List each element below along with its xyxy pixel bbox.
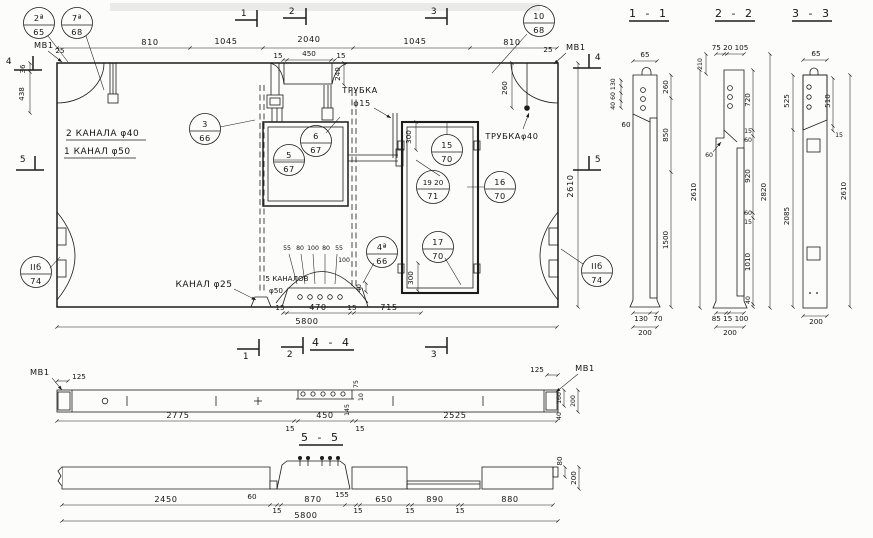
section-4-4: 4 - 4 МВ1 125 2775 15 450 15 2525 75 10 … xyxy=(30,336,595,433)
callout-3-66: 366 xyxy=(190,114,221,145)
svg-text:70: 70 xyxy=(494,191,506,201)
block-880 xyxy=(482,467,553,489)
dim-36: 36 xyxy=(18,64,27,74)
lifting-loop-1-1 xyxy=(642,68,651,76)
dim-60-55: 60 xyxy=(247,492,257,501)
svg-text:19 20: 19 20 xyxy=(423,178,444,187)
svg-text:2: 2 xyxy=(289,7,295,17)
mv1-44-left: МВ1 xyxy=(30,367,50,377)
dim-450: 450 xyxy=(316,410,333,420)
dim-ch-80b: 80 xyxy=(322,245,330,252)
dim-40-22: 40 xyxy=(745,296,752,304)
dim-145: 145 xyxy=(344,404,351,416)
dim-60-22-left: 60 xyxy=(705,152,713,159)
callout-16-70: 1670 xyxy=(485,172,516,203)
dim-15-22b: 15 xyxy=(744,219,752,226)
section-5-5-title: 5 - 5 xyxy=(301,431,341,444)
section-2-2-title: 2 - 2 xyxy=(715,7,755,20)
dim-2085: 2085 xyxy=(782,207,791,225)
dim-1500: 1500 xyxy=(661,230,670,249)
dim-100: 100 xyxy=(338,257,350,264)
dim-ch-55a: 55 xyxy=(283,245,291,252)
dim-niche-15r: 15 xyxy=(336,51,345,60)
dim-60-11: 60 xyxy=(621,120,631,129)
dim-880: 880 xyxy=(501,494,518,504)
cut-marker-4-right: 4 xyxy=(573,53,601,68)
callout-4a-66: 4ª66 xyxy=(367,237,398,268)
svg-text:4ª: 4ª xyxy=(377,242,387,252)
svg-text:4: 4 xyxy=(6,57,12,67)
dim-525: 525 xyxy=(782,94,791,108)
dim-125-left: 125 xyxy=(72,372,86,381)
dim-2820: 2820 xyxy=(759,182,768,201)
canal25-outlet xyxy=(251,297,271,307)
dim-15-55a: 15 xyxy=(272,506,281,515)
dim-720: 720 xyxy=(743,93,752,107)
dim-15-55c: 15 xyxy=(405,506,414,515)
dim-15-55d: 15 xyxy=(455,506,464,515)
dim-15-44r: 15 xyxy=(355,424,364,433)
dim-15-44l: 15 xyxy=(285,424,294,433)
svg-text:10: 10 xyxy=(533,11,545,21)
cut-marker-5-right: 5 xyxy=(573,155,601,170)
dim-10: 10 xyxy=(358,393,365,401)
dim-200-33: 200 xyxy=(809,317,823,326)
svg-text:66: 66 xyxy=(199,133,211,143)
dim-2610: 2610 xyxy=(565,174,575,197)
dim-top-22: 75 20 105 xyxy=(712,43,749,52)
lifting-loop-3-3 xyxy=(810,68,818,75)
top-niche xyxy=(284,63,332,84)
end-tab xyxy=(553,467,558,477)
panel-drawing: 810 1045 2040 1045 810 15 450 15 240 260… xyxy=(0,0,873,538)
dim-130-11: 130 xyxy=(634,314,648,323)
left-edge-arc xyxy=(57,212,75,300)
callout-7a-68: 7ª68 xyxy=(62,8,93,39)
dim-bot-22: 85 15 100 xyxy=(712,314,749,323)
hole-3-3-lower xyxy=(807,247,820,260)
cut-marker-5-left: 5 xyxy=(16,155,44,170)
svg-text:5: 5 xyxy=(286,150,292,160)
dim-2525: 2525 xyxy=(443,410,466,420)
svg-text:70: 70 xyxy=(432,251,444,261)
dim-15-br: 15 xyxy=(347,303,356,312)
dim-160: 160 xyxy=(556,392,563,404)
dim-75: 75 xyxy=(353,380,360,388)
block-2450 xyxy=(62,467,270,489)
erased-ghost-marks xyxy=(110,3,540,11)
dim-155: 155 xyxy=(335,490,349,499)
svg-text:71: 71 xyxy=(427,191,439,201)
section-3-3-title: 3 - 3 xyxy=(792,7,832,20)
dim-650: 650 xyxy=(375,494,392,504)
label-trubka40: ТРУБКАφ40 xyxy=(484,131,538,141)
block-650 xyxy=(352,467,407,489)
dim-15-bl: 15 xyxy=(275,303,284,312)
dim-125-right: 125 xyxy=(530,365,544,374)
panel-3-3 xyxy=(803,75,827,308)
dim-200-11: 200 xyxy=(638,328,652,337)
dim-niche-450: 450 xyxy=(302,49,316,58)
dim-300-bot: 300 xyxy=(406,271,415,285)
svg-text:66: 66 xyxy=(376,256,388,266)
dim-1045-right: 1045 xyxy=(403,36,426,46)
embed-plate-1 xyxy=(108,63,118,103)
dim-80-55: 80 xyxy=(555,456,564,466)
mv1-44-right: МВ1 xyxy=(575,363,595,373)
dim-15-22a: 15 xyxy=(744,128,752,135)
dim-438: 438 xyxy=(17,87,26,101)
dim-2040: 2040 xyxy=(297,34,320,44)
cut-marker-2-bottom: 2 xyxy=(281,337,303,360)
callout-IIb-74-left: IIб74 xyxy=(21,257,52,288)
svg-text:3: 3 xyxy=(202,119,208,129)
callout-17-70: 1770 xyxy=(423,232,454,263)
dim-470: 470 xyxy=(309,302,326,312)
callout-6-67: 667 xyxy=(301,126,332,157)
cut-marker-3-bottom: 3 xyxy=(425,337,447,360)
dim-ch-55b: 55 xyxy=(335,245,343,252)
raised-block-870 xyxy=(277,461,350,489)
svg-text:7ª: 7ª xyxy=(72,13,82,23)
mv1-label-right: МВ1 xyxy=(566,42,586,52)
dim-65-33: 65 xyxy=(811,49,820,58)
dim-260: 260 xyxy=(500,81,509,95)
callout-1920-71: 19 2071 xyxy=(417,171,450,204)
svg-text:70: 70 xyxy=(441,154,453,164)
dim-65-11: 65 xyxy=(640,50,649,59)
dim-2775: 2775 xyxy=(166,410,189,420)
mv1-label-left: МВ1 xyxy=(34,40,54,50)
dim-5800-plan: 5800 xyxy=(295,316,318,326)
dim-200-44: 200 xyxy=(570,395,577,407)
svg-text:IIб: IIб xyxy=(30,262,42,272)
dim-870: 870 xyxy=(304,494,321,504)
dim-1045-left: 1045 xyxy=(214,36,237,46)
dim-510: 510 xyxy=(823,94,832,108)
dim-2610-33: 2610 xyxy=(839,181,848,200)
label-f50: φ50 xyxy=(269,286,283,295)
dim-70-11: 70 xyxy=(653,314,663,323)
svg-text:1: 1 xyxy=(243,352,249,362)
section-5-5: 5 - 5 2450 60 15 870 155 15 650 15 890 1… xyxy=(58,431,579,521)
svg-text:17: 17 xyxy=(432,237,444,247)
section-1-1: 1 - 1 65 40 60 130 60 260 850 1500 130 7… xyxy=(610,7,671,337)
section-4-4-title: 4 - 4 xyxy=(312,336,352,349)
svg-text:2: 2 xyxy=(287,350,293,360)
dim-810-left: 810 xyxy=(141,37,158,47)
dim-2610-22: 2610 xyxy=(689,182,698,201)
blueprint-page: 810 1045 2040 1045 810 15 450 15 240 260… xyxy=(0,0,873,538)
svg-text:6: 6 xyxy=(313,131,319,141)
dim-810-right: 810 xyxy=(503,37,520,47)
label-kanal25: КАНАЛ φ25 xyxy=(176,280,233,290)
dim-60-22b: 60 xyxy=(744,210,752,217)
right-edge-arc xyxy=(540,212,558,300)
svg-text:68: 68 xyxy=(533,25,545,35)
dim-15-33: 15 xyxy=(835,132,843,139)
hole-3-3-upper xyxy=(807,139,820,152)
label-f15: φ15 xyxy=(353,98,371,108)
callout-IIb-74-right: IIб74 xyxy=(582,256,613,287)
dim-260-11: 260 xyxy=(661,80,670,94)
section-2-2: 2 - 2 75 20 105 210 2610 60 720 15 60 92… xyxy=(689,7,770,337)
dim-ch-80a: 80 xyxy=(296,245,304,252)
embed-plate-3 xyxy=(322,85,333,120)
panel-outline xyxy=(57,63,558,307)
dim-240: 240 xyxy=(333,67,342,81)
svg-text:5: 5 xyxy=(20,155,26,165)
svg-text:3: 3 xyxy=(431,350,437,360)
svg-text:67: 67 xyxy=(310,145,322,155)
dim-1010: 1010 xyxy=(743,252,752,271)
dim-25-right: 25 xyxy=(543,45,552,54)
label-5kanalov: 5 КАНАЛОВ xyxy=(265,274,308,283)
section-3-3: 3 - 3 65 525 2085 510 15 2610 200 xyxy=(782,7,850,326)
dim-920: 920 xyxy=(743,169,752,183)
svg-text:74: 74 xyxy=(30,276,42,286)
right-opening xyxy=(402,122,478,293)
label-1-canal: 1 КАНАЛ φ50 xyxy=(64,147,131,157)
central-opening xyxy=(263,122,348,206)
anchor-block-top-right xyxy=(511,63,558,103)
svg-text:4: 4 xyxy=(595,53,601,63)
dim-40: 40 xyxy=(356,284,363,292)
callout-10-68: 1068 xyxy=(524,6,555,37)
recess-450 xyxy=(296,390,354,399)
dim-niche-15l: 15 xyxy=(273,51,282,60)
section-1-1-title: 1 - 1 xyxy=(629,7,669,20)
label-2-canala: 2 КАНАЛА φ40 xyxy=(66,129,139,139)
svg-text:67: 67 xyxy=(283,164,295,174)
dim-ch-100: 100 xyxy=(307,245,319,252)
dim-200-55: 200 xyxy=(569,471,578,485)
dim-60-22a: 60 xyxy=(744,137,752,144)
web-890 xyxy=(407,481,480,489)
svg-text:1: 1 xyxy=(241,9,247,19)
dim-stack-11: 40 60 130 xyxy=(610,78,617,110)
dim-715: 715 xyxy=(380,302,397,312)
svg-text:5: 5 xyxy=(595,155,601,165)
cut-marker-1-bottom: 1 xyxy=(237,339,259,362)
svg-text:3: 3 xyxy=(431,7,437,17)
dim-2450: 2450 xyxy=(154,494,177,504)
plan-view: 810 1045 2040 1045 810 15 450 15 240 260… xyxy=(6,6,613,363)
dim-40-44: 40 xyxy=(556,412,563,420)
svg-text:16: 16 xyxy=(494,177,506,187)
dim-200-22: 200 xyxy=(723,328,737,337)
callout-15-70: 1570 xyxy=(432,135,463,166)
callout-2a-65: 2ª65 xyxy=(24,8,55,39)
cut-marker-1-top: 1 xyxy=(235,9,257,27)
tube40-outlet xyxy=(524,63,530,111)
dim-5800-55: 5800 xyxy=(294,510,317,520)
dim-15-55b: 15 xyxy=(353,506,362,515)
svg-text:2ª: 2ª xyxy=(34,13,44,23)
svg-text:65: 65 xyxy=(33,27,45,37)
label-trubka: ТРУБКА xyxy=(341,85,378,95)
svg-text:15: 15 xyxy=(441,140,453,150)
channel-1-1 xyxy=(650,118,657,298)
svg-text:IIб: IIб xyxy=(591,261,603,271)
dim-210: 210 xyxy=(697,58,704,70)
dim-850: 850 xyxy=(661,128,670,142)
web-60 xyxy=(270,481,277,489)
dim-890: 890 xyxy=(426,494,443,504)
dim-300-top: 300 xyxy=(404,130,413,144)
svg-text:74: 74 xyxy=(591,275,603,285)
svg-text:68: 68 xyxy=(71,27,83,37)
